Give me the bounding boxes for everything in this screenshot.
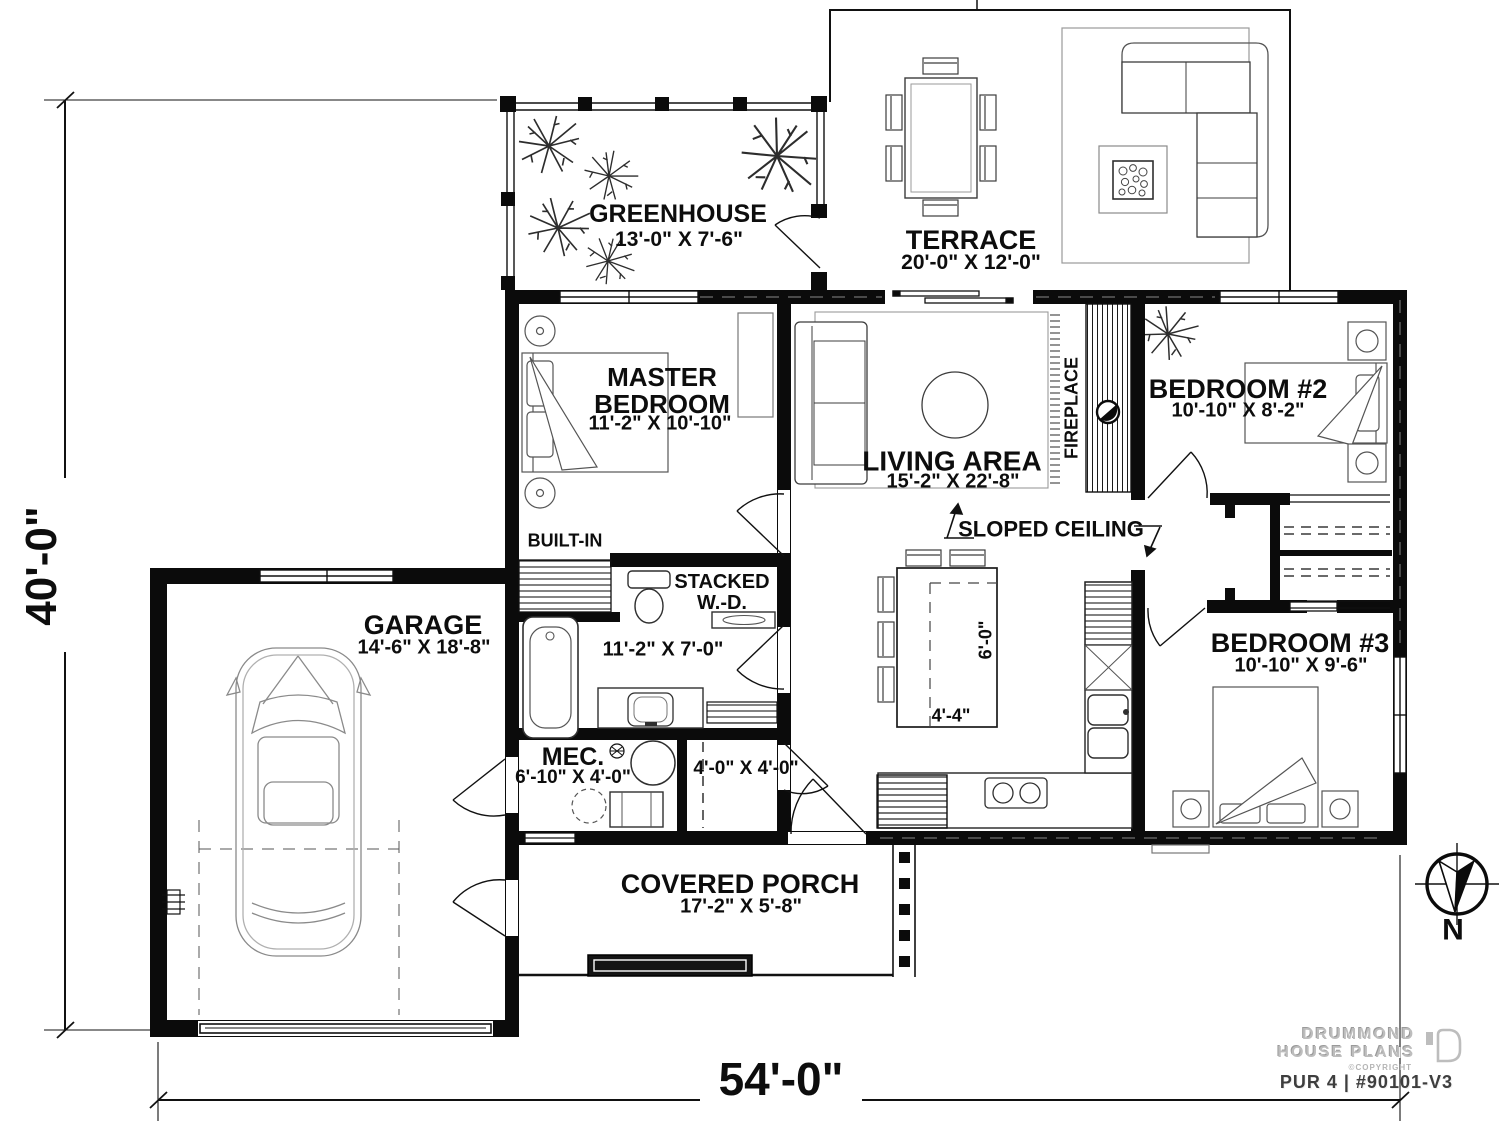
master-bedroom-size: 11'-2" X 10'-10"	[588, 414, 731, 435]
garage-contents	[162, 648, 399, 1015]
floor-plan-drawing	[0, 0, 1500, 1126]
brand-logo-icon	[1426, 1030, 1460, 1061]
covered-porch-label: COVERED PORCH	[621, 870, 860, 898]
fireplace-label: FIREPLACE	[1063, 357, 1082, 459]
greenhouse-label: GREENHOUSE	[589, 201, 767, 227]
greenhouse-size: 13'-0" X 7'-6"	[615, 229, 743, 251]
overall-width-dimension: 54'-0"	[719, 1056, 844, 1104]
hall-closets	[1272, 527, 1392, 576]
bedroom3-furniture	[1152, 687, 1358, 853]
built-in-label: BUILT-IN	[528, 532, 603, 551]
overall-depth-dimension: 40'-0"	[19, 506, 65, 625]
bedroom3-size: 10'-10" X 9'-6"	[1235, 656, 1368, 677]
mechanical-label: MEC.	[542, 744, 605, 770]
island-width-label: 4'-4"	[932, 707, 971, 726]
entry-closet-size: 4'-0" X 4'-0"	[693, 759, 798, 779]
garage-size: 14'-6" X 18'-8"	[358, 638, 491, 659]
copyright-label: ©COPYRIGHT	[1349, 1063, 1412, 1072]
brand-name-line1: DRUMMOND	[1302, 1026, 1415, 1044]
greenhouse-structure	[500, 96, 827, 290]
fireplace-icon	[1086, 304, 1131, 492]
living-area-size: 15'-2" X 22'-8"	[887, 472, 1020, 493]
mechanical-size: 6'-10" X 4'-0"	[515, 768, 631, 788]
stacked-wd-label: STACKED W.-D.	[671, 572, 773, 614]
bedroom2-size: 10'-10" X 8'-2"	[1172, 401, 1305, 422]
covered-porch-size: 17'-2" X 5'-8"	[680, 897, 802, 918]
floor-plan-canvas: GREENHOUSE 13'-0" X 7'-6" TERRACE 20'-0"…	[0, 0, 1500, 1126]
island-depth-label: 6'-0"	[977, 621, 996, 660]
bathroom-size: 11'-2" X 7'-0"	[603, 640, 724, 661]
compass-north-label: N	[1442, 914, 1464, 945]
garage-label: GARAGE	[364, 611, 483, 639]
sloped-ceiling-label: SLOPED CEILING	[958, 519, 1144, 542]
brand-name-line2: HOUSE PLANS	[1277, 1044, 1415, 1062]
plan-id-label: PUR 4 | #90101-V3	[1280, 1072, 1453, 1093]
built-in-closet	[519, 560, 611, 612]
terrace-label: TERRACE	[906, 226, 1037, 254]
bedroom3-label: BEDROOM #3	[1211, 629, 1390, 657]
terrace-size: 20'-0" X 12'-0"	[901, 252, 1041, 274]
master-bedroom-label: MASTER BEDROOM	[582, 364, 742, 418]
car-icon	[227, 648, 370, 956]
